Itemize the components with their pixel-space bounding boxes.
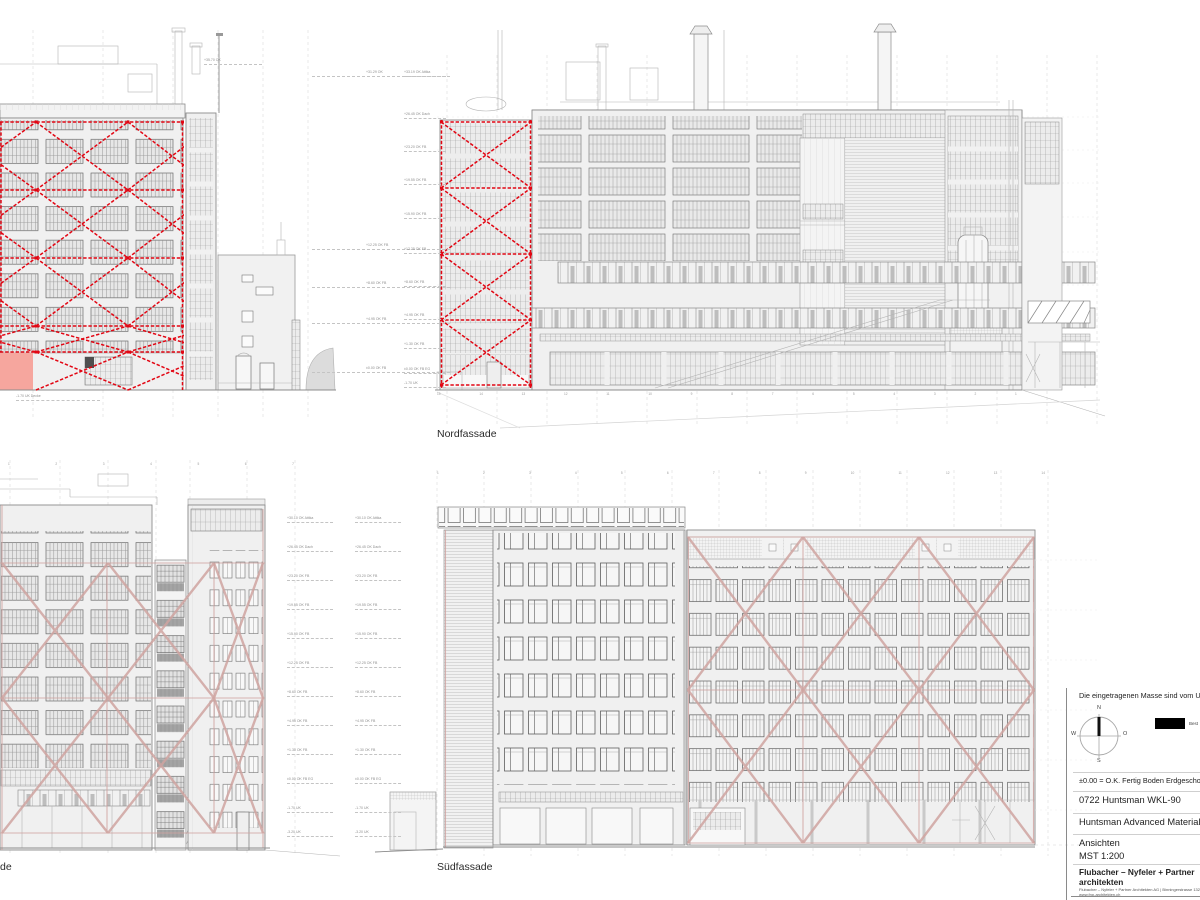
level-mark: +8.60 OK FB [355, 690, 401, 697]
sheet-scale: MST 1:200 [1079, 851, 1124, 861]
grid-tick: 2 [483, 471, 485, 475]
grid-tick: 7 [713, 471, 715, 475]
divider [1073, 791, 1200, 792]
compass-west-label: W [1071, 731, 1076, 737]
grid-tick: 6 [812, 392, 814, 396]
level-mark: +30.10 OK Attika [287, 516, 333, 523]
measurement-note: Die eingetragenen Masse sind vom Un [1079, 691, 1200, 700]
legend-existing: Best [1155, 718, 1198, 729]
firm-name-line1: Flubacher – Nyfeler + Partner [1079, 867, 1195, 877]
label-west-facade-fragment: de [0, 861, 12, 873]
grid-axis-labels: 1234567891011121314 [437, 471, 1045, 475]
grid-tick: 11 [606, 392, 609, 396]
divider [1073, 772, 1200, 773]
grid-tick: 12 [946, 471, 950, 475]
grid-tick: 4 [575, 471, 577, 475]
grid-tick: 3 [529, 471, 531, 475]
level-mark: +19.55 OK FB [355, 603, 401, 610]
grid-tick: 11 [898, 471, 901, 475]
title-block: Die eingetragenen Masse sind vom Un N S … [1066, 688, 1200, 900]
grid-tick: 3 [103, 462, 105, 466]
level-mark: +12.25 OK FB [404, 247, 446, 254]
divider [1073, 834, 1200, 835]
grid-tick: 10 [851, 471, 855, 475]
level-mark: +23.20 OK FB [355, 574, 401, 581]
grid-tick: 12 [564, 392, 568, 396]
level-mark: +1.30 OK FB [355, 748, 401, 755]
level-mark: +19.55 OK FB [404, 178, 446, 185]
elevation-south [375, 470, 1100, 856]
grid-tick: 7 [292, 462, 294, 466]
grid-tick: 14 [479, 392, 483, 396]
grid-tick: 8 [759, 471, 761, 475]
level-annotations: +33.19 OK Attika+26.45 OK Dach+23.20 OK … [404, 0, 446, 900]
plan-sheet: Nordfassade Südfassade de +35.70 OK +31.… [0, 0, 1200, 900]
level-mark: +15.90 OK FB [404, 212, 446, 219]
level-mark: -1.70 UK [355, 806, 401, 813]
grid-tick: 13 [994, 471, 998, 475]
level-annotations: +35.70 OK [204, 0, 262, 900]
level-mark: -3.20 UK [287, 830, 333, 837]
grid-tick: 5 [621, 471, 623, 475]
grid-axis-labels: 151413121110987654321 [437, 392, 1017, 396]
legend-label: Best [1189, 721, 1198, 726]
compass-icon: N S W O [1071, 706, 1129, 768]
grid-tick: 10 [648, 392, 652, 396]
level-mark: +26.45 OK Dach [287, 545, 333, 552]
grid-tick: 4 [893, 392, 895, 396]
level-annotations: +30.10 OK Attika+26.45 OK Dach+23.20 OK … [355, 0, 401, 900]
level-mark: -1.70 UK [404, 381, 446, 388]
level-mark: +1.30 OK FB [287, 748, 333, 755]
grid-tick: 4 [150, 462, 152, 466]
datum-note: ±0.00 = O.K. Fertig Boden Erdgeschos [1079, 776, 1200, 785]
grid-tick: 14 [1041, 471, 1045, 475]
compass-north-label: N [1097, 705, 1101, 711]
level-mark: ±0.00 OK FB EG [287, 777, 333, 784]
grid-tick: 8 [731, 392, 733, 396]
level-annotations: +30.10 OK Attika+26.45 OK Dach+23.20 OK … [287, 0, 333, 900]
client-name: Huntsman Advanced Materials Gr [1079, 817, 1200, 827]
firm-name-line2: architekten [1079, 877, 1123, 887]
grid-tick: 1 [437, 471, 439, 475]
level-mark: +8.60 OK FB [404, 280, 446, 287]
level-mark: +26.45 OK Dach [355, 545, 401, 552]
project-number: 0722 Huntsman WKL-90 [1079, 795, 1181, 805]
level-mark: +4.95 OK FB [355, 719, 401, 726]
grid-tick: 5 [197, 462, 199, 466]
level-mark: +15.90 OK FB [287, 632, 333, 639]
level-mark: -3.20 UK [355, 830, 401, 837]
grid-tick: 9 [691, 392, 693, 396]
grid-tick: 3 [934, 392, 936, 396]
divider [1073, 864, 1200, 865]
level-annotations: -1.70 UK Decke [16, 0, 100, 900]
grid-tick: 9 [805, 471, 807, 475]
level-mark: -1.70 UK [287, 806, 333, 813]
grid-axis-labels: 1234567 [8, 462, 294, 466]
level-mark: -1.70 UK Decke [16, 394, 100, 401]
level-mark: +12.25 OK FB [355, 661, 401, 668]
level-mark: +19.55 OK FB [287, 603, 333, 610]
level-mark: +4.95 OK FB [287, 719, 333, 726]
grid-tick: 1 [1015, 392, 1017, 396]
grid-tick: 2 [55, 462, 57, 466]
grid-tick: 1 [8, 462, 10, 466]
level-mark: +12.25 OK FB [287, 661, 333, 668]
level-mark: +30.10 OK Attika [355, 516, 401, 523]
sheet-frame-line [1071, 896, 1200, 897]
grid-tick: 15 [437, 392, 441, 396]
level-mark: +15.90 OK FB [355, 632, 401, 639]
level-mark: ±0.00 OK FB EG [404, 367, 446, 374]
elevation-drawings [0, 0, 1200, 900]
level-mark: +4.95 OK FB [404, 313, 446, 320]
level-mark: +35.70 OK [204, 58, 262, 65]
compass-east-label: O [1123, 731, 1127, 737]
level-mark: ±0.00 OK FB EG [355, 777, 401, 784]
level-mark: +26.45 OK Dach [404, 112, 446, 119]
grid-tick: 6 [667, 471, 669, 475]
compass-south-label: S [1097, 758, 1101, 764]
grid-tick: 7 [772, 392, 774, 396]
level-mark: +23.20 OK FB [287, 574, 333, 581]
grid-tick: 13 [522, 392, 526, 396]
elevation-north [435, 24, 1105, 428]
grid-tick: 5 [853, 392, 855, 396]
sheet-title: Ansichten [1079, 838, 1120, 848]
grid-tick: 2 [974, 392, 976, 396]
grid-tick: 6 [245, 462, 247, 466]
level-mark: +33.19 OK Attika [404, 70, 446, 77]
legend-swatch [1155, 718, 1185, 729]
level-mark: +1.30 OK FB [404, 342, 446, 349]
divider [1073, 813, 1200, 814]
level-mark: +23.20 OK FB [404, 145, 446, 152]
level-mark: +8.60 OK FB [287, 690, 333, 697]
